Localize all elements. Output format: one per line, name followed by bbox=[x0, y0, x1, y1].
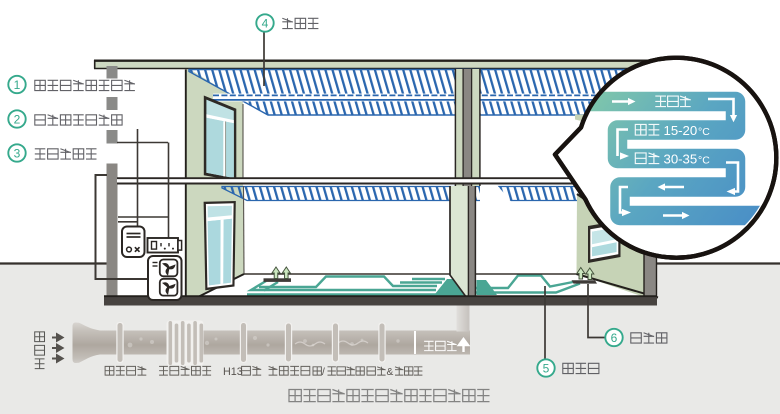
svg-text:°C: °C bbox=[698, 155, 710, 167]
svg-text:/: / bbox=[322, 367, 325, 378]
svg-text:4: 4 bbox=[262, 16, 269, 30]
svg-text:°C: °C bbox=[698, 126, 710, 138]
svg-text:5: 5 bbox=[543, 361, 550, 375]
svg-text:H13: H13 bbox=[223, 366, 243, 378]
svg-text:30-35: 30-35 bbox=[664, 152, 698, 167]
svg-text:3: 3 bbox=[14, 146, 21, 160]
svg-text:&: & bbox=[387, 367, 394, 378]
svg-text:2: 2 bbox=[14, 112, 21, 126]
svg-text:6: 6 bbox=[611, 331, 618, 345]
svg-text:1: 1 bbox=[14, 78, 21, 92]
svg-text:15-20: 15-20 bbox=[664, 123, 698, 138]
